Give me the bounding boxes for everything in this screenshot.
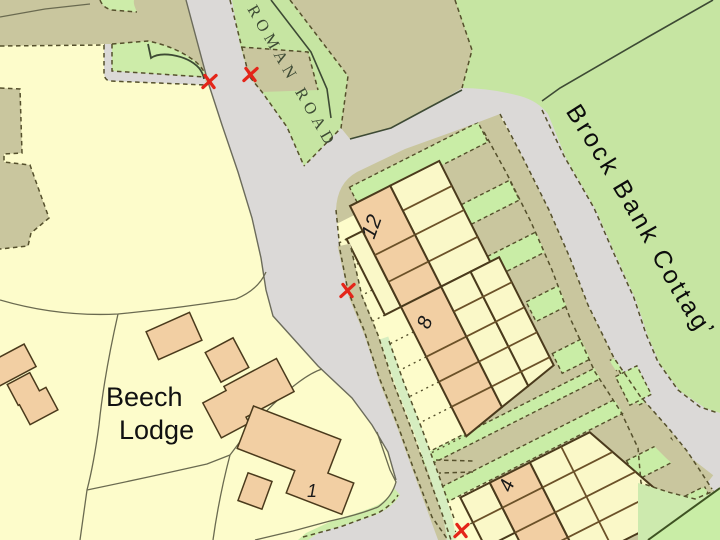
svg-text:Beech: Beech bbox=[106, 382, 183, 412]
svg-text:1: 1 bbox=[307, 481, 317, 501]
svg-text:Lodge: Lodge bbox=[119, 415, 194, 445]
